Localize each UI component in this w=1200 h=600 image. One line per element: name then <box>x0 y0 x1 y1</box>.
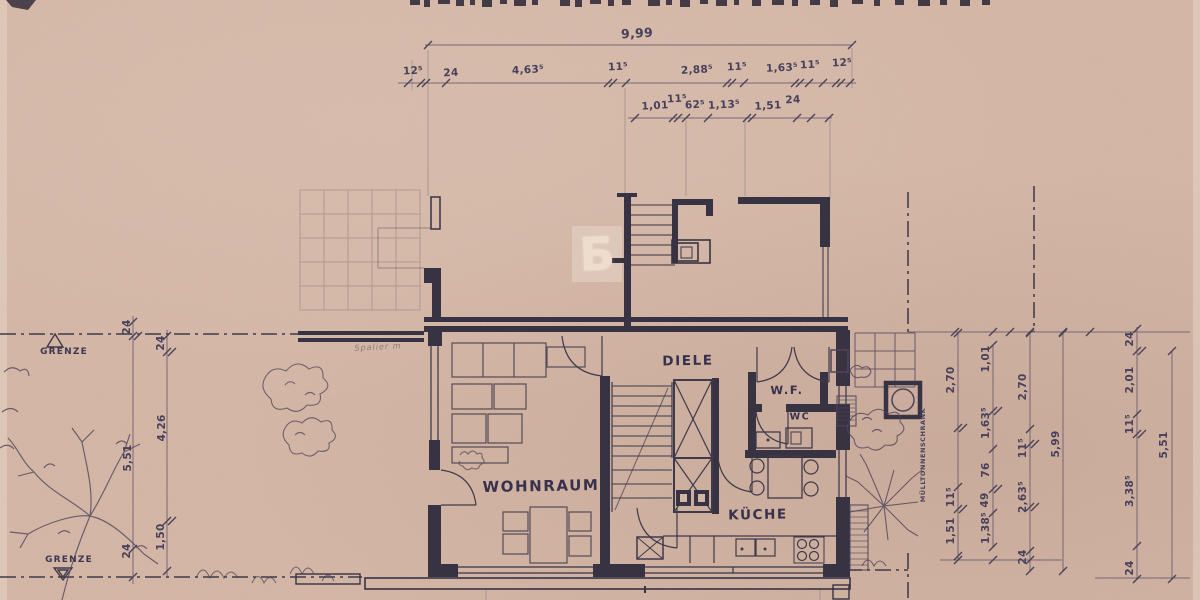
dim-top: 4,63⁵ <box>512 63 545 77</box>
dim-left: 24 <box>121 319 133 334</box>
dim-top2: 1,51 <box>754 99 782 112</box>
dim-right: 2,01 <box>1124 366 1136 393</box>
dim-right: 24 <box>1124 560 1136 575</box>
dim-right: 2,63⁵ <box>1017 481 1029 513</box>
dim-top2: 24 <box>785 94 801 107</box>
dim-top: 1,63⁵ <box>766 61 799 75</box>
dim-left: 5,51 <box>122 444 134 471</box>
dim-top: 11⁵ <box>727 60 748 73</box>
dim-right: 5,99 <box>1050 430 1062 457</box>
room-label-kueche: KÜCHE <box>728 506 788 523</box>
dim-right: 1,38⁵ <box>980 512 992 544</box>
dim-right: 11⁵ <box>1124 414 1136 434</box>
dim-right: 2,70 <box>945 366 957 393</box>
dim-left: 24 <box>155 335 167 350</box>
dim-top: 12⁵ <box>403 64 424 77</box>
dim-right: 11⁵ <box>945 487 957 507</box>
grenze-label-top: GRENZE <box>40 347 88 357</box>
dim-left: 24 <box>121 543 133 558</box>
dim-right: 76 <box>980 462 992 477</box>
dim-top: 11⁵ <box>800 58 821 71</box>
dim-top: 12⁵ <box>832 56 853 69</box>
grenze-label-bottom: GRENZE <box>45 555 93 565</box>
dim-overall-width: 9,99 <box>621 25 654 42</box>
dim-right: 1,01 <box>980 345 992 372</box>
sheet-watermark: Б <box>579 226 616 281</box>
dim-right: 24 <box>1017 549 1029 564</box>
dim-right: 3,38⁵ <box>1124 475 1136 507</box>
room-label-wc: WC <box>790 411 811 422</box>
dim-right: 49 <box>979 492 991 507</box>
dim-right: 5,51 <box>1158 431 1170 458</box>
dim-right: 1,63⁵ <box>980 407 992 439</box>
dim-right: 1,51 <box>945 517 957 544</box>
dim-right: 2,70 <box>1017 373 1029 400</box>
dim-top: 24 <box>443 67 459 80</box>
muelltonnenschrank-label: MÜLLTONNENSCHRANK <box>919 408 927 502</box>
dim-top: 11⁵ <box>608 60 629 73</box>
blueprint-canvas: Б 9,99 12⁵ 24 4,63⁵ 11⁵ 2,88⁵ 11⁵ 1,63⁵ … <box>0 0 1200 600</box>
room-label-diele: DIELE <box>662 353 714 370</box>
dim-top2: 62⁵ <box>685 98 706 111</box>
dim-left: 1,50 <box>155 523 167 550</box>
dim-right: 11⁵ <box>1017 438 1029 458</box>
dim-top2: 1,13⁵ <box>708 98 741 112</box>
dim-left: 4,26 <box>156 414 168 441</box>
room-label-wf: W.F. <box>770 383 803 398</box>
dim-right: 24 <box>1124 331 1136 346</box>
room-label-wohnraum: WOHNRAUM <box>482 476 599 496</box>
dim-top: 2,88⁵ <box>681 63 714 77</box>
dim-top2: 1,01 <box>641 99 669 112</box>
